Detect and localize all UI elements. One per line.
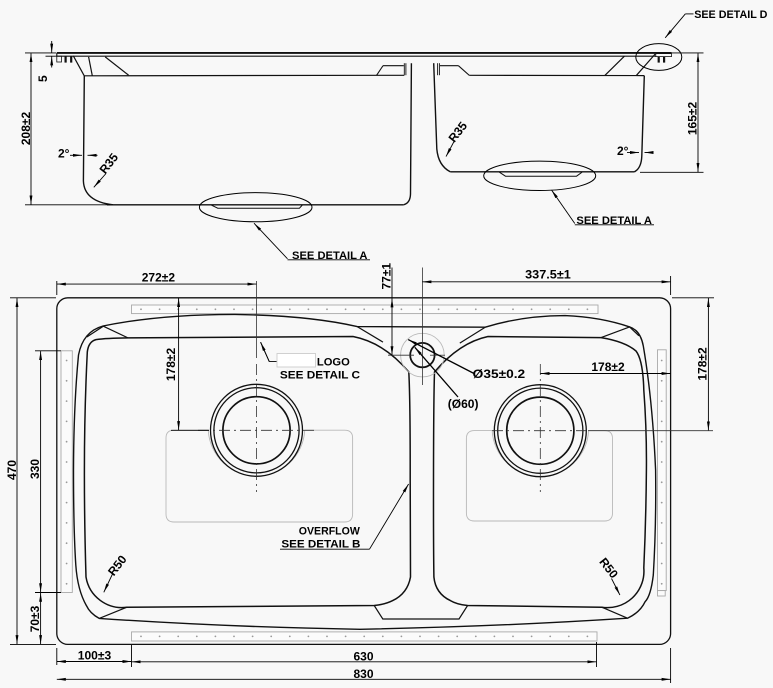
svg-text:SEE DETAIL C: SEE DETAIL C [280,369,360,381]
svg-text:630: 630 [353,649,373,663]
svg-text:SEE DETAIL D: SEE DETAIL D [694,9,767,21]
svg-text:165±2: 165±2 [685,102,699,136]
svg-text:208±2: 208±2 [19,112,33,146]
svg-text:2°: 2° [617,144,629,158]
svg-text:178±2: 178±2 [164,348,178,382]
svg-text:2°: 2° [58,147,70,161]
svg-text:470: 470 [5,460,19,480]
svg-text:337.5±1: 337.5±1 [525,267,571,281]
svg-text:SEE DETAIL A: SEE DETAIL A [292,250,368,262]
svg-text:SEE DETAIL B: SEE DETAIL B [281,539,360,551]
svg-text:70±3: 70±3 [28,605,42,632]
svg-text:Ø35±0.2: Ø35±0.2 [473,367,526,381]
svg-text:5: 5 [36,75,50,82]
svg-text:77±1: 77±1 [379,263,393,290]
svg-text:LOGO: LOGO [317,356,350,368]
svg-text:(Ø60): (Ø60) [448,397,479,411]
svg-text:100±3: 100±3 [78,648,112,662]
svg-text:OVERFLOW: OVERFLOW [299,525,361,537]
svg-text:330: 330 [28,459,42,479]
svg-text:178±2: 178±2 [696,347,710,381]
svg-text:830: 830 [353,667,373,681]
svg-text:SEE DETAIL A: SEE DETAIL A [576,215,652,227]
svg-text:272±2: 272±2 [142,270,176,284]
svg-text:178±2: 178±2 [591,360,625,374]
